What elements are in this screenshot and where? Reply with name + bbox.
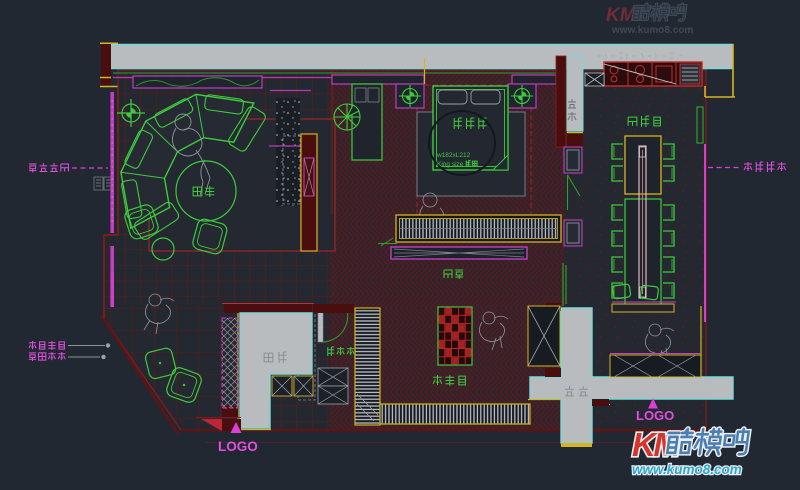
svg-text:w182xL212: w182xL212: [436, 152, 471, 159]
svg-text:LOGO: LOGO: [218, 439, 258, 454]
svg-text:www.kumo8.com: www.kumo8.com: [632, 462, 742, 477]
svg-text:LOGO: LOGO: [636, 408, 674, 423]
svg-text:KM: KM: [606, 5, 637, 26]
svg-text:King size: King size: [437, 161, 464, 168]
svg-text:www.kumo8.com: www.kumo8.com: [611, 25, 693, 36]
